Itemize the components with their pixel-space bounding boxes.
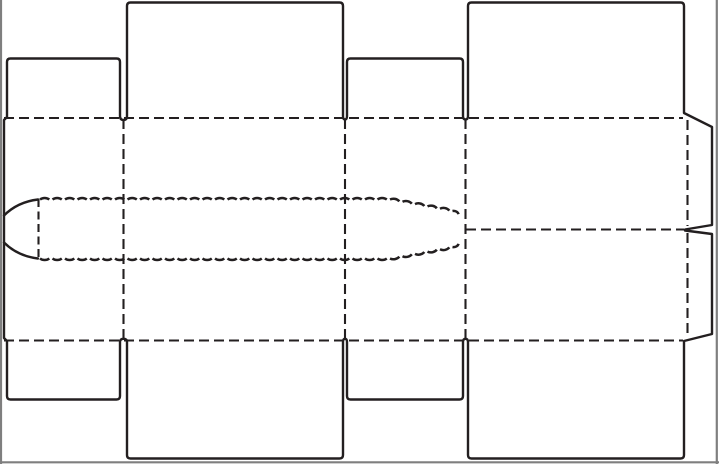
- page: [0, 0, 719, 464]
- canvas-background: [0, 0, 719, 464]
- box-dieline-diagram: [0, 0, 719, 464]
